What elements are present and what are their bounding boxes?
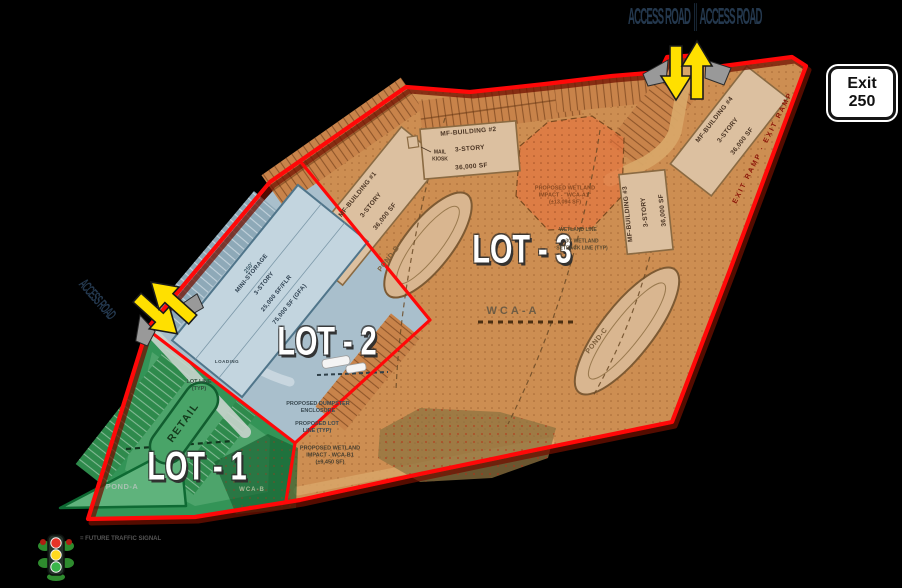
building-story: 3-STORY: [442, 143, 499, 157]
building-area: 36,000 SF: [443, 161, 500, 175]
wca-b-label: WCA-B: [239, 487, 265, 495]
lot-2-label: LOT - 2: [277, 320, 376, 365]
exit-sign-number: 250: [849, 93, 876, 111]
mail-kiosk: [407, 136, 418, 148]
lot-1-label: LOT - 1: [147, 445, 246, 490]
mf-building-2-label: MF-BUILDING #2 3-STORY 36,000 SF: [439, 117, 500, 183]
north-road-label: ACCESS ROAD ║ ACCESS ROAD: [628, 3, 762, 30]
building-story: 3-STORY: [639, 184, 654, 241]
wetland-setback-label: 30' WETLAND SETBACK LINE (TYP): [556, 239, 607, 252]
building-name: MF-BUILDING #2: [440, 126, 497, 140]
site-plan-drawing: [0, 0, 902, 588]
mail-kiosk-label: MAIL KIOSK: [432, 150, 448, 163]
building-name: MF-BUILDING #3: [621, 185, 636, 242]
exit-sign-word: Exit: [847, 75, 876, 93]
signal-legend-label: = FUTURE TRAFFIC SIGNAL: [80, 536, 161, 542]
wetland-impact-a-label: PROPOSED WETLAND IMPACT - "WCA-A1" (±13,…: [535, 185, 595, 206]
wetland-impact-b-label: PROPOSED WETLAND IMPACT - WCA-B1 (±9,450…: [300, 445, 360, 466]
loading-label: LOADING: [215, 359, 239, 365]
traffic-signal-icon: [38, 535, 74, 581]
lot-line-label: LOT LINE (TYP): [186, 379, 211, 393]
exit-250-sign: Exit 250: [828, 66, 896, 120]
site-plan-canvas: ACCESS ROAD ║ ACCESS ROAD ACCESS ROAD EX…: [0, 0, 902, 588]
pond-a-label: POND-A: [106, 482, 139, 492]
mf-building-3-label: MF-BUILDING #3 3-STORY 36,000 SF: [613, 181, 680, 243]
building-area: 36,000 SF: [656, 182, 671, 239]
wetland-line-label: WETLAND LINE: [559, 227, 597, 234]
wca-a-label: WCA-A: [487, 304, 540, 318]
proposed-lot-line-label: PROPOSED LOT LINE (TYP): [295, 421, 339, 435]
dumpster-label: PROPOSED DUMPSTER ENCLOSURE: [286, 401, 350, 415]
